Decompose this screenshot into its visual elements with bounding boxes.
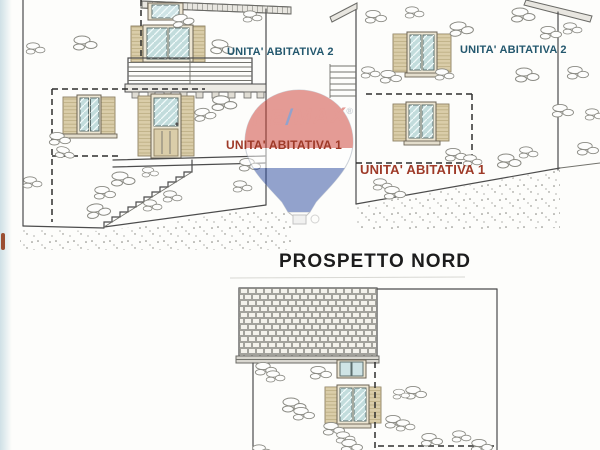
left-unit1-label: UNITA' ABITATIVA 1	[226, 138, 342, 152]
ground-hatch	[357, 169, 560, 230]
lower-window	[393, 102, 449, 145]
scanned-elevation-drawing: RE/MAX® UNITA' ABITATIVA 2 UNITA' ABITAT…	[0, 0, 600, 450]
left-unit2-label: UNITA' ABITATIVA 2	[227, 46, 334, 58]
scan-edge-artifact	[0, 0, 14, 450]
scan-red-mark-artifact	[1, 233, 5, 250]
entrance-door	[138, 94, 194, 158]
roof-eave-left	[330, 3, 357, 22]
right-unit2-label: UNITA' ABITATIVA 2	[460, 44, 567, 56]
upper-french-door	[131, 25, 205, 62]
ground-floor-window	[61, 95, 117, 138]
balloon-basket	[293, 215, 306, 224]
small-window	[337, 360, 366, 378]
remax-watermark: RE/MAX®	[243, 88, 373, 228]
right-unit1-label: UNITA' ABITATIVA 1	[360, 162, 485, 177]
north-elevation	[230, 277, 497, 450]
page-title: PROSPETTO NORD	[275, 251, 475, 273]
registered-mark-icon	[311, 215, 319, 223]
main-window	[325, 385, 381, 428]
remax-wordmark: RE/MAX®	[252, 102, 356, 132]
door-knob	[175, 122, 178, 125]
